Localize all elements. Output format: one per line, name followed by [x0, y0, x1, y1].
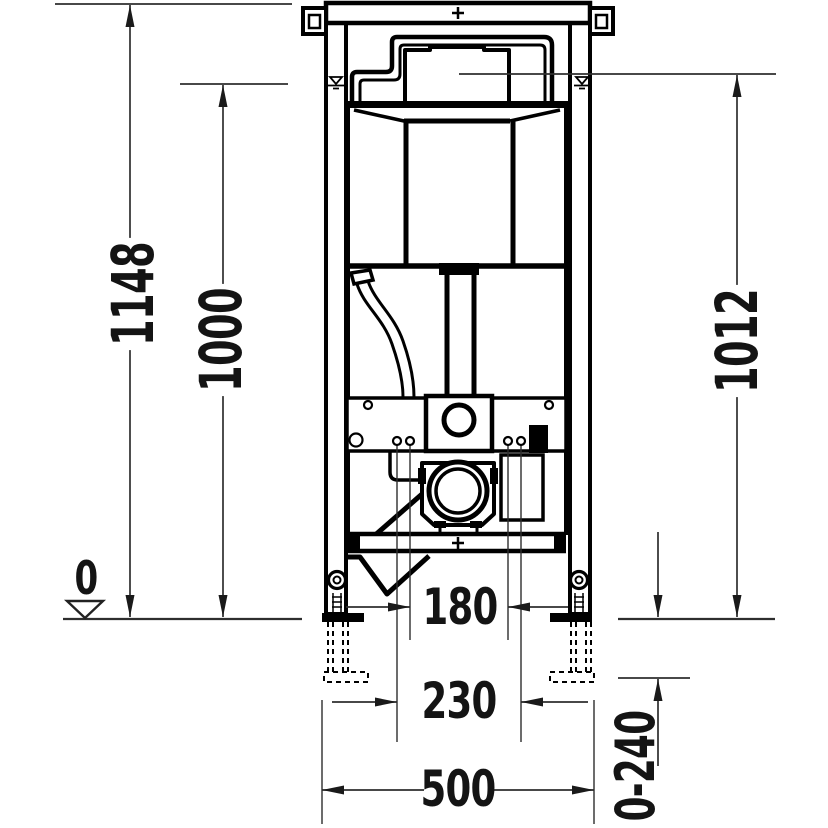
wall-bracket-left: [303, 8, 326, 34]
bottom-crossbar: [348, 533, 566, 552]
adjustable-leg-dashed: [550, 622, 594, 682]
dim-label-500: 500: [406, 764, 510, 814]
tank-top-band: [346, 101, 568, 108]
adjuster-bolt: [329, 572, 346, 589]
inlet-hose: [351, 270, 414, 397]
frame-right-rail: [570, 3, 590, 614]
installation-frame-drawing: 1148 1000 1012 0 180 230 500 0-240: [0, 0, 828, 828]
dim-label-total-height: 1148: [105, 238, 161, 350]
left-pipe-bracket: [390, 452, 420, 480]
adjuster-bolt: [571, 572, 588, 589]
foot-base-plate: [550, 613, 592, 622]
foot-base-plate: [322, 613, 364, 622]
dim-label-230: 230: [407, 676, 511, 726]
dim-label-foot-range: 0-240: [608, 690, 664, 828]
threaded-rod-hole: [406, 437, 414, 445]
dim-label-1000: 1000: [193, 284, 249, 396]
wall-bracket-right: [590, 8, 613, 34]
flush-pipe: [447, 272, 474, 397]
dim-label-floor-datum: 0: [68, 555, 105, 601]
threaded-rod-hole: [504, 437, 512, 445]
adjustable-leg-dashed: [324, 622, 368, 682]
dim-label-180: 180: [408, 582, 512, 632]
frame-left-rail: [326, 3, 346, 614]
threaded-rod-hole: [393, 437, 401, 445]
dim-label-water-level: 1012: [709, 285, 765, 397]
threaded-rod-hole: [517, 437, 525, 445]
plate-clamp-block: [529, 425, 548, 453]
mounting-plate: [347, 396, 566, 453]
inspection-shaft: [405, 47, 509, 104]
